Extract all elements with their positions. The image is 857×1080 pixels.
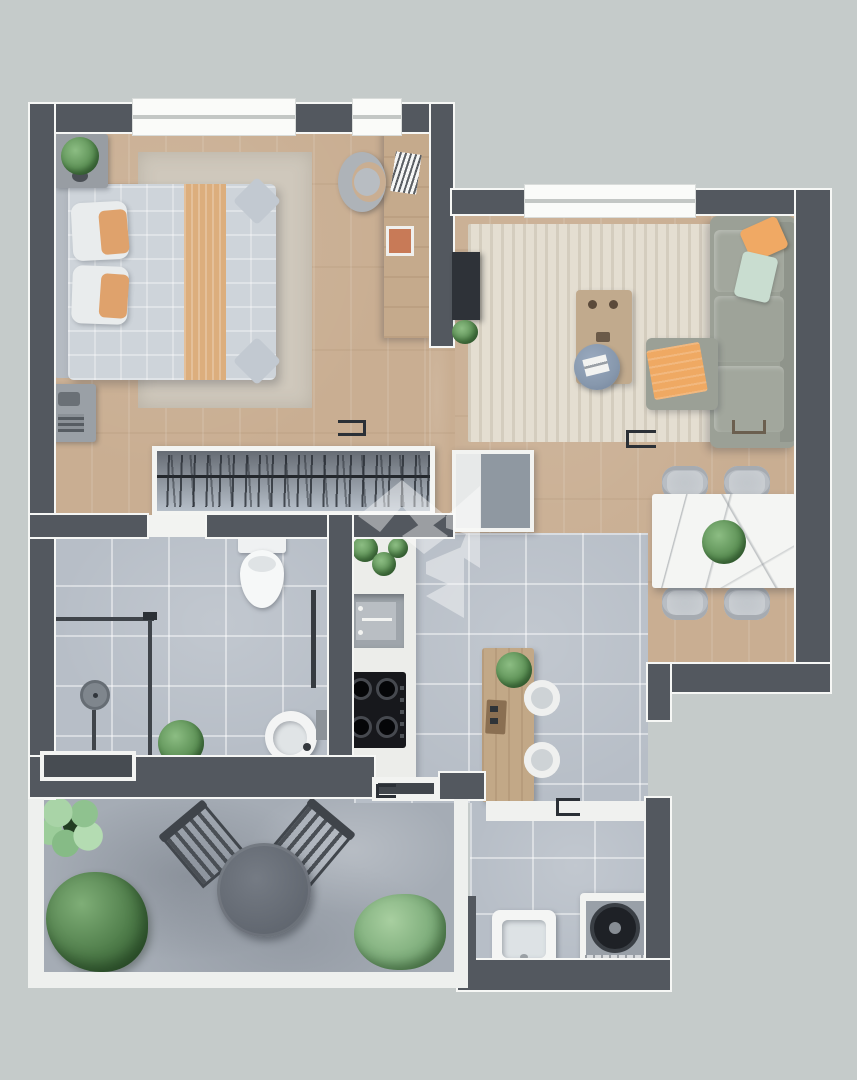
bathroom-window-box (40, 751, 136, 781)
radio-grill (58, 414, 84, 432)
pouf (574, 344, 620, 390)
radio-speaker (58, 392, 80, 406)
dining-chair-3 (662, 586, 708, 620)
cooktop-knobs (400, 682, 404, 738)
burner-2 (376, 678, 398, 700)
laundry-basin-tub (502, 920, 546, 958)
sink-faucet (303, 743, 311, 751)
terrace-railing-left (28, 799, 44, 984)
coffee-cup-2 (609, 300, 618, 309)
dining-table (652, 494, 796, 588)
towel-rail (311, 590, 316, 688)
desk-papers (385, 146, 428, 201)
wall-left (28, 102, 56, 800)
desk-chair-seat (354, 168, 380, 196)
desk-chair (338, 152, 386, 212)
wall-living-right (794, 188, 832, 694)
double-bed (54, 184, 276, 380)
dining-chair-4 (724, 586, 770, 620)
shower-glass-horizontal (54, 617, 154, 621)
ottoman (646, 338, 718, 410)
bed-runner (184, 184, 226, 380)
living-window (524, 184, 696, 218)
shower-pole (92, 710, 96, 750)
terrace-flower-plant (38, 795, 104, 857)
wall-service-bottom (456, 958, 672, 992)
watermark-svg (352, 468, 492, 620)
burner-4 (376, 716, 398, 738)
ottoman-throw (646, 342, 708, 401)
hallway-door-bracket-2 (626, 430, 656, 448)
sink-basin (273, 721, 307, 755)
ac-fan-hub (609, 922, 621, 934)
tv-plant (452, 320, 478, 344)
wall-bathroom-top-left (28, 513, 149, 539)
tv (452, 252, 480, 320)
island-plant (496, 652, 532, 688)
sofa-seat-2 (714, 296, 784, 362)
bar-stool-1 (524, 680, 560, 716)
terrace-railing-bottom (28, 972, 468, 988)
desk-orange-mat (386, 226, 414, 256)
coffee-table-item (596, 332, 610, 342)
wall-dining-stub (646, 662, 672, 722)
shower-head-center (93, 693, 98, 698)
terrace-service-divider (454, 799, 468, 974)
nightstand-bottom (50, 384, 96, 442)
shower-glass-vertical (148, 617, 152, 755)
island-board (485, 699, 507, 734)
hallway-door-bracket-1 (338, 420, 366, 436)
island-utensil-2 (490, 718, 498, 724)
kitchen-faucet-knob-2 (358, 630, 363, 635)
bathroom-door-threshold (149, 515, 205, 537)
wall-dining-bottom (646, 662, 832, 694)
island-utensil-1 (490, 706, 498, 712)
side-table-frame (732, 420, 766, 434)
toilet-seat-detail (248, 556, 276, 572)
shower-glass-hinge (143, 612, 157, 620)
sink-side-ledge (316, 710, 327, 740)
bed-pillow-orange-2 (98, 273, 129, 319)
terrace-bush-small (354, 894, 446, 970)
shower-head (80, 680, 110, 710)
bedroom-desk-window (352, 98, 402, 136)
nightstand-top (54, 134, 108, 188)
terrace-door-handle (376, 784, 396, 798)
pouf-magazine (582, 354, 609, 376)
bed-pillow-orange-1 (98, 209, 130, 255)
bedroom-window (132, 98, 296, 136)
dining-centerpiece-plant (702, 520, 746, 564)
floor-plan-canvas (0, 0, 857, 1080)
service-door-handle (556, 798, 580, 816)
bar-stool-2 (524, 742, 560, 778)
wall-terrace-door-stub (438, 771, 486, 801)
terrace-table (217, 843, 311, 937)
coffee-cup-1 (588, 300, 597, 309)
nightstand-plant (61, 137, 99, 175)
developer-logo-watermark (352, 468, 492, 620)
sofa (710, 216, 796, 448)
